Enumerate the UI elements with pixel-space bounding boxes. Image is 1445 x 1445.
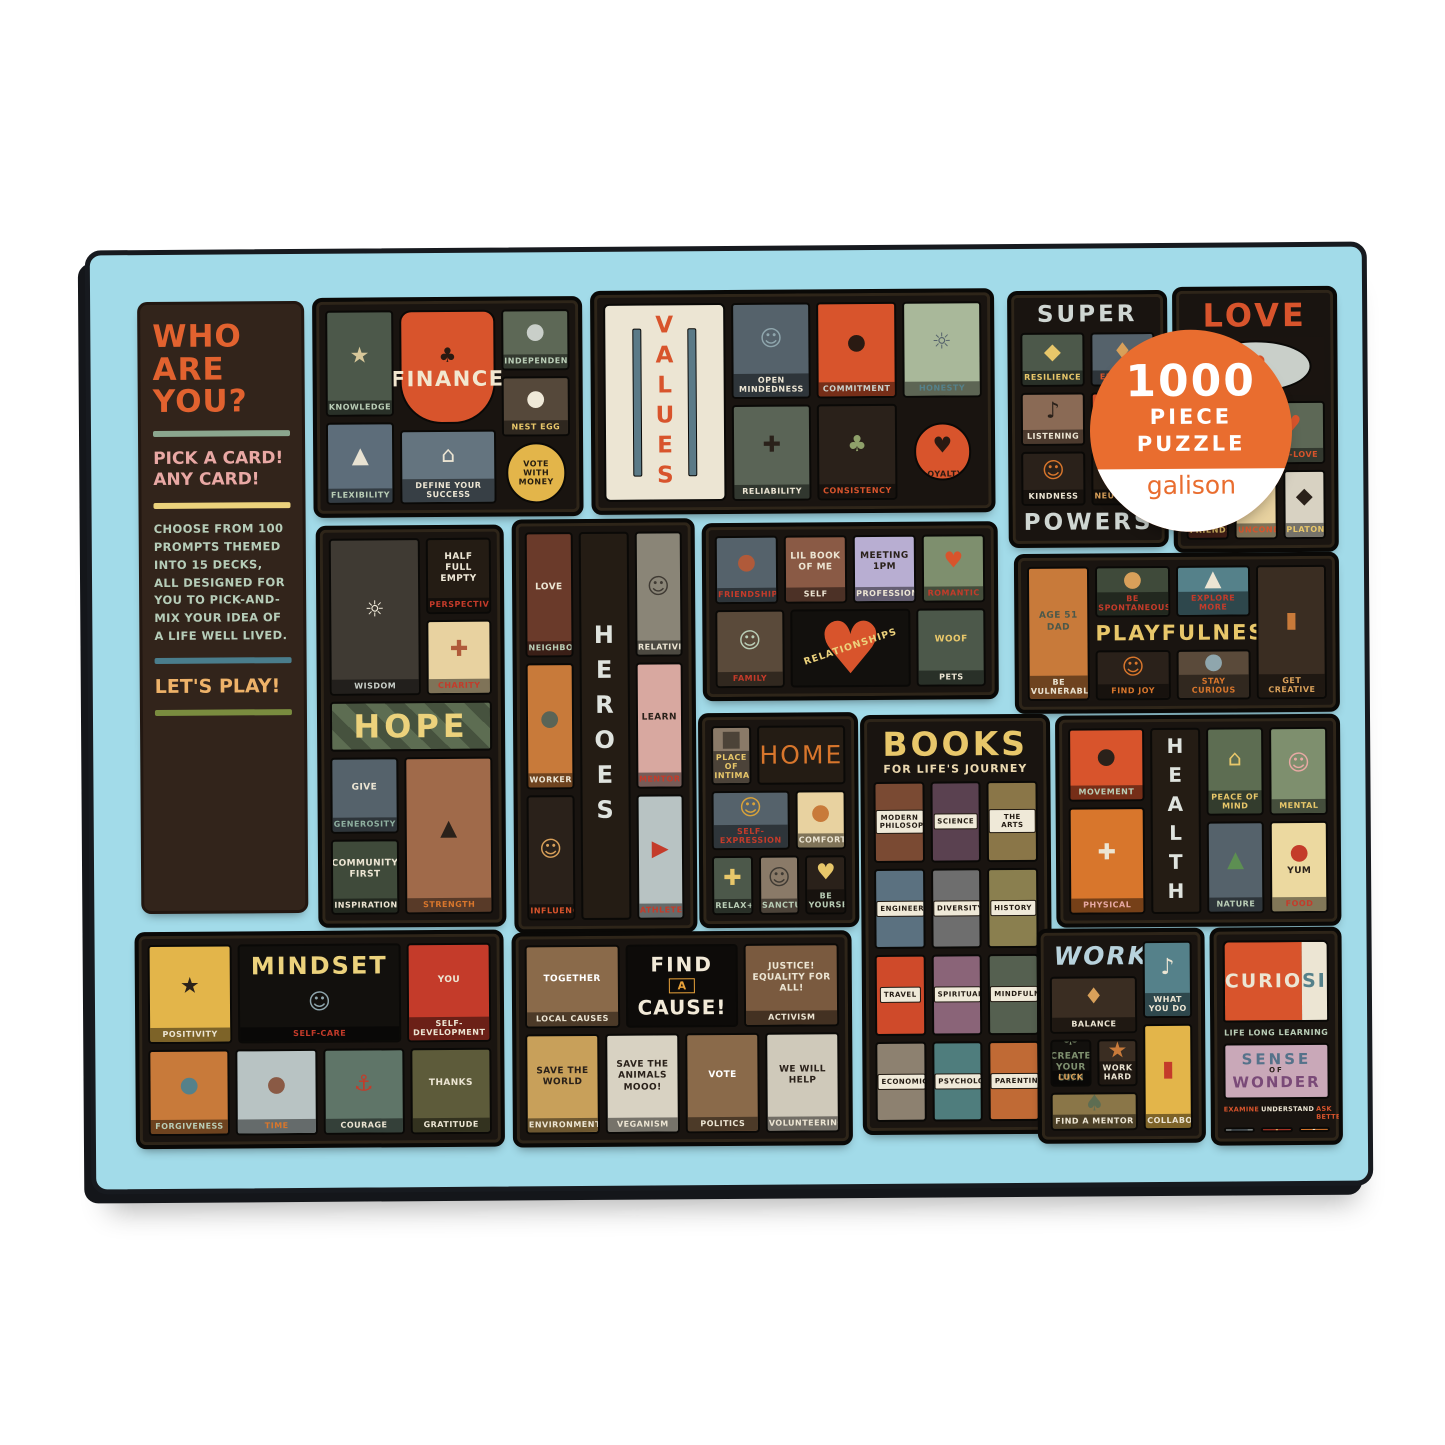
prompt-card: ☺FAMILY	[715, 610, 784, 689]
prompt-label: MINDFULNESS	[990, 986, 1038, 1002]
prompt-card: ●FRIENDSHIP	[715, 536, 778, 604]
prompt-label: NEIGHBOR	[527, 641, 571, 655]
prompt-card: SPIRITUALITY	[931, 954, 982, 1035]
toy-robot-icon: ☺	[1098, 651, 1169, 684]
clock-face-icon: ●	[267, 1074, 286, 1096]
home-panel: ■PLACE OF INTIMACY HOME ☺SELF-EXPRESSION…	[698, 712, 859, 928]
prompt-label: TRAVEL	[880, 987, 921, 1003]
magnifying-glass-icon: ●	[1226, 1129, 1253, 1132]
product-title: WHO ARE YOU?	[152, 320, 290, 419]
prompt-card: COMMUNITY FIRSTINSPIRATION	[331, 839, 399, 915]
books-title: BOOKS	[882, 727, 1028, 761]
pencil-hug-icon: ▮	[1162, 1059, 1174, 1081]
relationships-heart-card: ♥ RELATIONSHIPS	[790, 609, 911, 688]
rocket-icon: ▲	[1204, 568, 1221, 590]
prompt-label: HISTORY	[990, 900, 1036, 916]
anatomy-torso-icon: ✚	[1098, 843, 1117, 865]
dove-flower-icon: ●	[150, 1051, 228, 1120]
prompt-label: PLACE OF INTIMACY	[713, 751, 749, 783]
phone-portrait-icon: ☺	[539, 839, 562, 861]
mug-icon: ●	[811, 802, 830, 824]
card-art-text: WOOF	[935, 635, 968, 646]
work-title: WORK	[1050, 941, 1138, 971]
community-hero-icon: COMMUNITY FIRST	[333, 841, 397, 899]
relationships-panel: ●FRIENDSHIPLIL BOOK OF MESELFMEETING 1PM…	[702, 521, 999, 701]
money-tree-icon: ♣	[438, 345, 456, 365]
prompt-label: PSYCHOLOGY	[934, 1073, 982, 1089]
shield-icon: ◆	[1044, 342, 1061, 364]
hugging-family-icon: ☺	[647, 576, 670, 598]
raised-fist-icon: ●	[847, 332, 866, 354]
prompt-card: YOUSELF-DEVELOPMENT	[407, 943, 492, 1043]
ear-icon: ♪	[1023, 394, 1083, 430]
home-title: HOME	[757, 725, 845, 785]
apple-icon: ●	[1289, 842, 1308, 864]
mindset-title: MINDSET	[239, 945, 399, 980]
prompt-card: ☺RELATIVE	[634, 531, 682, 657]
books-subtitle: FOR LIFE'S JOURNEY	[883, 762, 1027, 776]
finance-panel: ★KNOWLEDGE▲FLEXIBILITY ♣ FINANCE ⌂DEFINE…	[312, 296, 584, 518]
prompt-card: ☺KINDNESS	[1021, 452, 1085, 506]
pocket-knife-icon: ✚	[734, 406, 810, 485]
badge-brand-band: galison	[1090, 468, 1292, 532]
prompt-label: FIND JOY	[1098, 684, 1169, 698]
card-art-text: COMMUNITY FIRST	[332, 858, 399, 881]
prompt-card: ☺FIND JOY	[1096, 649, 1171, 700]
prompt-label: VEGANISM	[608, 1117, 678, 1131]
prompt-card: ☺INFLUENCER	[527, 795, 575, 921]
prompt-card: ●BE SPONTANEOUS	[1095, 566, 1170, 617]
prompt-label: SANCTUARY	[761, 899, 798, 913]
prompt-card: ♥BE YOURSELF	[805, 855, 846, 914]
love-title: LOVE	[1185, 299, 1324, 332]
thumbs-up-coin-icon: ●	[526, 322, 545, 344]
prompt-label: COMFORT	[798, 833, 844, 847]
card-art-text: SAVE THE ANIMALS MOOO!	[609, 1060, 675, 1094]
treasure-map-icon: ★	[350, 345, 370, 367]
prompt-card: ●MOVEMENT	[1068, 728, 1144, 801]
weightlifter-icon: ▲	[440, 817, 457, 839]
prompt-label: GENEROSITY	[333, 817, 397, 831]
nest-eggs-icon: ●	[503, 378, 568, 421]
divider	[155, 657, 292, 664]
prompt-card: MINDFULNESS	[988, 954, 1039, 1035]
runner-icon: ▶	[652, 839, 669, 861]
prompt-label: NATURE	[1209, 897, 1263, 911]
prompt-card: ★POSITIVITY	[148, 944, 233, 1044]
card-art-text: SAVE THE WORLD	[529, 1066, 595, 1089]
prompt-card: SAVE THE ANIMALS MOOO!VEGANISM	[605, 1034, 680, 1134]
card-art-text: WE WILL HELP	[769, 1064, 835, 1087]
finance-right-cards: ●INDEPENDENCE●NEST EGGVOTE WITH MONEY	[501, 309, 571, 503]
heroes-right-cards: ☺RELATIVELEARNMENTOR▶ATHLETE	[634, 531, 684, 919]
prompt-label: POSITIVITY	[150, 1027, 230, 1042]
you-book-icon: YOU	[409, 945, 489, 1018]
open-palm-icon: ☼	[904, 303, 980, 382]
prompt-card: VOTE WITH MONEY	[506, 442, 567, 503]
work-main-col: WORK ♦BALANCE ♣CREATE YOUR OWNLUCK★WORK …	[1050, 941, 1139, 1131]
clover-icon: ♣	[1061, 1039, 1081, 1049]
dog-badge-icon: ♥	[932, 436, 952, 458]
prompt-label: THE ARTS	[989, 809, 1036, 833]
prompt-label: RELIABILITY	[734, 484, 809, 499]
bathtub-icon: ☺	[240, 979, 400, 1027]
hearth-fire-icon: ♥	[816, 862, 836, 884]
mug-icon: ●	[797, 792, 843, 833]
prompt-card: ENGINEERING	[874, 868, 925, 949]
prompt-label: PARENTING	[991, 1073, 1039, 1089]
crayons-icon: ▮	[1258, 567, 1325, 674]
lightbulb-hand-icon: !	[1272, 1127, 1281, 1132]
health-panel: ●MOVEMENT✚PHYSICAL HEALTH ⌂PEACE OF MIND…	[1055, 714, 1341, 928]
family-portrait-icon: ☺	[717, 612, 782, 673]
mentor-tree-icon: ♠	[1084, 1093, 1104, 1115]
mentor-tree-icon: ♠	[1053, 1094, 1137, 1114]
prompt-label: INFLUENCER	[529, 904, 573, 918]
prompt-label: PROFESSIONAL	[855, 587, 914, 601]
prompt-card: ●FORGIVENESS	[148, 1049, 230, 1136]
prompt-card: ●NEST EGG	[501, 376, 570, 437]
lil-book-of-me-icon: LIL BOOK OF ME	[786, 537, 845, 587]
pine-trees-icon: ▲	[1227, 849, 1244, 871]
binoculars-icon: ●	[1204, 652, 1223, 674]
prompt-card: ●INDEPENDENCE	[501, 309, 570, 370]
compass-smiley-icon: ☼	[365, 599, 385, 621]
toy-robot-icon: ☺	[1121, 657, 1144, 679]
apartment-building-icon: ■	[721, 728, 742, 750]
prompt-label: SPIRITUALITY	[934, 986, 982, 1002]
prompt-card: ☺OPEN MINDEDNESS	[731, 302, 811, 399]
puzzle-box: WHO ARE YOU? PICK A CARD! ANY CARD! CHOO…	[85, 242, 1374, 1195]
prompt-label: ACTIVISM	[746, 1010, 837, 1025]
prompt-card: ◆RESILIENCE	[1020, 333, 1084, 387]
cello-stamp-icon: ♪	[1160, 957, 1174, 979]
hand-pencil-head-icon: ☺	[714, 793, 788, 826]
prompt-card: THANKSGRATITUDE	[410, 1048, 492, 1135]
prompt-label: KNOWLEDGE	[328, 400, 392, 414]
prompt-card: ☼HONESTY	[902, 301, 982, 398]
hugging-family-icon: ☺	[636, 533, 680, 641]
work-side-col: ♪WHAT YOU DO▮COLLABORATE	[1143, 941, 1193, 1130]
hearth-fire-icon: ♥	[807, 857, 844, 889]
card-art-text: TOGETHER	[543, 974, 600, 986]
phone-portrait-icon: ☺	[529, 797, 573, 905]
prompt-label: RESILIENCE	[1023, 370, 1083, 384]
give-piggy-bank-icon: GIVE	[332, 759, 396, 817]
card-art-text: MEETING 1PM	[857, 550, 912, 573]
intro-body-text: CHOOSE FROM 100 PROMPTS THEMED INTO 15 D…	[154, 520, 292, 646]
prompt-card: ●STAY CURIOUS	[1176, 649, 1251, 700]
prompt-label: BE VULNERABLE	[1030, 675, 1088, 698]
wonder-line1: SENSE	[1242, 1052, 1312, 1068]
open-door-head-icon: ☺	[733, 304, 809, 374]
prompt-label: COMMITMENT	[819, 382, 894, 397]
cause-title-line2: A	[669, 978, 696, 993]
heroes-title: HEROES	[578, 532, 631, 920]
anatomy-torso-icon: ✚	[1071, 809, 1143, 899]
juggler-stairs-icon: ♦	[1084, 987, 1104, 1009]
prompt-card: ✚RELAX+RECHARGE	[712, 856, 753, 915]
prompt-card: VOTEPOLITICS	[685, 1033, 760, 1133]
card-art-text: THANKS	[429, 1078, 473, 1090]
nest-eggs-icon: ●	[526, 388, 545, 410]
card-art-text: LOVE	[535, 582, 563, 593]
prompt-card: !WHY	[1261, 1127, 1292, 1132]
prompt-card: SCIENCE	[930, 781, 981, 862]
piece-count-badge: 1000 PIECE PUZZLE galison	[1089, 329, 1292, 532]
apartment-building-icon: ■	[713, 728, 749, 751]
question-mark-icon: ?	[1301, 1129, 1328, 1132]
book-shelf: MODERN PHILOSOPHYSCIENCETHE ARTSENGINEER…	[873, 781, 1039, 1122]
tree-icon: ♣	[847, 434, 867, 456]
life-long-learning-label: LIFE LONG LEARNING	[1223, 1028, 1329, 1038]
clover-icon: ♣CREATE YOUR OWN	[1052, 1041, 1089, 1071]
prompt-card: ●WORKER	[526, 663, 574, 789]
dancing-friends-icon: ●	[717, 538, 776, 588]
juggler-stairs-icon: ♦	[1052, 978, 1136, 1017]
books-header: BOOKS FOR LIFE'S JOURNEY	[873, 727, 1037, 776]
prompt-label: CONSISTENCY	[820, 484, 895, 499]
together-banner-icon: TOGETHER	[527, 947, 618, 1013]
apple-icon: ●YUM	[1272, 823, 1326, 897]
prompt-card: ☺SELF-EXPRESSION	[712, 791, 790, 851]
health-title: HEALTH	[1150, 728, 1201, 914]
prompt-label: SELF-EXPRESSION	[714, 825, 788, 849]
prompt-card: MODERN PHILOSOPHY	[873, 782, 924, 863]
thanks-card-icon: THANKS	[412, 1050, 490, 1119]
save-animals-sign-icon: SAVE THE ANIMALS MOOO!	[607, 1036, 678, 1118]
prompt-card: ⌂DEFINE YOUR SUCCESS	[400, 430, 496, 504]
cyclist-icon: ●	[1096, 747, 1115, 769]
prompt-card: ▲EXPLORE MORE	[1176, 565, 1251, 616]
find-a-cause-title-card: FIND A CAUSE!	[625, 944, 738, 1028]
card-art-text: GIVE	[352, 783, 378, 794]
prompt-card: ⚓COURAGE	[323, 1048, 405, 1135]
shield-icon: ◆	[1022, 335, 1082, 371]
prompt-label: MODERN PHILOSOPHY	[876, 810, 924, 834]
dove-flower-icon: ●	[179, 1075, 198, 1097]
prompt-card: ●COMMITMENT	[816, 302, 896, 399]
relationships-row1-cards: ●FRIENDSHIPLIL BOOK OF MESELFMEETING 1PM…	[715, 534, 985, 604]
intro-pick-text: PICK A CARD! ANY CARD!	[153, 448, 290, 491]
prompt-label: MENTOR	[638, 772, 682, 786]
work-panel: WORK ♦BALANCE ♣CREATE YOUR OWNLUCK★WORK …	[1036, 928, 1205, 1144]
prompt-label: ATHLETE	[639, 903, 683, 917]
mountain-climber-icon: ▲	[352, 445, 369, 467]
examine-label: EXAMINE	[1224, 1105, 1259, 1121]
clock-face-icon: ●	[238, 1051, 316, 1120]
intro-panel: WHO ARE YOU? PICK A CARD! ANY CARD! CHOO…	[137, 301, 308, 914]
pocket-knife-icon: ✚	[762, 435, 781, 457]
prompt-card: ●EVERYTHING	[1224, 1127, 1255, 1132]
prompt-label: BALANCE	[1052, 1017, 1136, 1032]
prompt-card: ●TIME	[236, 1049, 318, 1136]
prompt-label: LISTENING	[1023, 430, 1083, 444]
prompt-card: ✚RELIABILITY	[732, 404, 812, 501]
prompt-card: HISTORY	[987, 867, 1038, 948]
prompt-label: LUCK	[1052, 1071, 1089, 1085]
prompt-label: DEFINE YOUR SUCCESS	[403, 479, 495, 503]
house-icon: ⌂	[441, 445, 455, 467]
mindset-panel: ★POSITIVITY MINDSET ☺ SELF-CARE YOUSELF-…	[134, 930, 505, 1150]
puzzle-box-product-photo: { "product": { "badge": {"line1": "1000"…	[0, 0, 1445, 1445]
prompt-label: EXPLORE MORE	[1178, 591, 1249, 614]
badge-word-piece: PIECE	[1150, 403, 1233, 431]
find-a-cause-panel: TOGETHERLOCAL CAUSES FIND A CAUSE! JUSTI…	[511, 930, 852, 1147]
prompt-card: WOOFPETS	[917, 608, 986, 687]
card-art-text: YUM	[1287, 866, 1311, 877]
values-title-card: VALUES	[603, 303, 726, 502]
prompt-label: RELATIVE	[637, 641, 681, 655]
meeting-note-icon: MEETING 1PM	[855, 537, 914, 587]
relationships-row2-cards: ☺FAMILY ♥ RELATIONSHIPS WOOFPETS	[715, 608, 986, 688]
prompt-card: ▮GET CREATIVE	[1256, 565, 1327, 699]
vote-fingers-icon: VOTE	[687, 1035, 758, 1117]
prompt-card: ●COMFORT	[795, 790, 846, 849]
lightbulb-hand-icon: !	[1263, 1129, 1290, 1132]
prompt-label: TIME	[238, 1119, 315, 1134]
compass-smiley-icon: ☼	[331, 540, 419, 680]
prompt-label: CHARITY	[429, 679, 490, 693]
reaching-hands-icon: ✚	[450, 639, 469, 661]
batteries-icon: ✚	[714, 858, 751, 899]
prompt-label: BE YOURSELF	[808, 889, 845, 912]
prompt-card: PSYCHOLOGY	[932, 1041, 983, 1122]
prompt-label: WORKER	[528, 773, 572, 787]
prompt-label: VOLUNTEERING	[768, 1116, 838, 1130]
resting-person-icon: ☺	[761, 858, 798, 899]
prompt-card: TRAVEL	[875, 955, 926, 1036]
question-mark-icon: ?	[1308, 1127, 1320, 1132]
superpowers-title-top: SUPER	[1020, 303, 1154, 327]
prompt-label: COLLABORATE	[1146, 1114, 1191, 1128]
curiosity-title-left: CURIO	[1225, 942, 1303, 1021]
justice-sign-icon: JUSTICE! EQUALITY FOR ALL!	[746, 945, 837, 1011]
raised-fist-icon: ●	[818, 304, 894, 383]
prompt-label: KINDNESS	[1023, 490, 1083, 504]
books-panel: BOOKS FOR LIFE'S JOURNEY MODERN PHILOSOP…	[860, 714, 1053, 1135]
prompt-label: COURAGE	[325, 1118, 402, 1133]
values-title: VALUES	[651, 312, 678, 492]
card-art-text: VOTE	[708, 1070, 736, 1081]
prompt-card: DIVERSITY	[931, 868, 982, 949]
badge-word-puzzle: PUZZLE	[1137, 431, 1246, 459]
burning-earth-sign-icon: SAVE THE WORLD	[527, 1036, 598, 1118]
prompt-card: LOVENEIGHBOR	[525, 532, 573, 658]
prompt-label: PHYSICAL	[1071, 898, 1143, 913]
prompt-card: ▲NATURE	[1207, 821, 1265, 914]
resting-person-icon: ☺	[768, 867, 791, 889]
hug-icon: ☺	[1042, 461, 1065, 483]
open-book-icon: CURIO SITY	[1223, 940, 1330, 1023]
reaching-hands-icon: ✚	[428, 621, 489, 679]
half-full-can-icon: HALF FULL EMPTY	[428, 540, 489, 598]
card-art-text: LIL BOOK OF ME	[788, 551, 843, 574]
roller-skate-icon: ●	[1123, 569, 1142, 591]
curiosity-cards: ●EVERYTHING!WHY?QUESTIONS	[1224, 1127, 1330, 1133]
prompt-card: ♪WHAT YOU DO	[1143, 941, 1192, 1018]
prompt-card: ⌂PEACE OF MIND	[1206, 727, 1264, 815]
prompt-card: LIL BOOK OF MESELF	[784, 535, 847, 603]
ear-icon: ♪	[1046, 401, 1060, 423]
playfulness-title: PLAYFULNESS	[1095, 622, 1250, 644]
prompt-card: ▲STRENGTH	[404, 757, 493, 915]
cause-title-line3: CAUSE!	[637, 995, 726, 1020]
prompt-card: ?QUESTIONS	[1299, 1127, 1330, 1132]
prompt-label: ECONOMICS	[877, 1073, 925, 1089]
roller-skate-icon: ●	[1097, 568, 1168, 592]
card-art-text: HALF FULL EMPTY	[430, 552, 487, 586]
prompt-label: BE SPONTANEOUS	[1097, 591, 1168, 614]
essential-worker-icon: ●	[540, 708, 559, 730]
hope-title: HOPE	[353, 710, 469, 743]
prompt-label: SELF-CARE	[240, 1026, 399, 1041]
ask-better-label: ASK BETTER	[1316, 1105, 1343, 1121]
hug-icon: ☺	[1023, 454, 1083, 490]
prompt-label: FORGIVENESS	[151, 1120, 228, 1135]
prompt-card: ♪LISTENING	[1021, 392, 1085, 446]
brand-logo: galison	[1147, 471, 1236, 501]
mindset-row2: ●FORGIVENESS●TIME⚓COURAGETHANKSGRATITUDE	[148, 1048, 492, 1136]
prompt-label: MENTAL	[1272, 799, 1326, 813]
curiosity-title-right: SITY	[1302, 942, 1329, 1020]
we-will-help-sign-icon: WE WILL HELP	[767, 1034, 838, 1116]
prompt-label: HONESTY	[904, 381, 979, 396]
prompt-label: MOVEMENT	[1070, 785, 1142, 800]
binoculars-icon: ●	[1178, 651, 1249, 675]
heroes-panel: LOVENEIGHBOR●WORKER☺INFLUENCER HEROES ☺R…	[512, 518, 698, 933]
prompt-label: STRENGTH	[407, 898, 491, 913]
cause-row1: TOGETHERLOCAL CAUSES FIND A CAUSE! JUSTI…	[525, 943, 840, 1028]
prompt-label: OPEN MINDEDNESS	[734, 373, 809, 397]
prompt-label: INSPIRATION	[333, 898, 397, 912]
divider	[153, 502, 290, 509]
dancing-friends-icon: ●	[737, 552, 756, 574]
house-icon: ⌂	[402, 432, 494, 479]
prompt-card: ★WORK HARD	[1097, 1039, 1138, 1087]
prompt-card: ♣CREATE YOUR OWNLUCK	[1050, 1039, 1091, 1087]
home-top-row: ■PLACE OF INTIMACY HOME	[711, 725, 845, 785]
learn-laptop-icon: LEARN	[637, 665, 681, 773]
prompt-card: ▮COLLABORATE	[1144, 1024, 1193, 1130]
pencil-icon	[687, 328, 697, 476]
lighthouse-window-icon: ⌂	[1228, 749, 1242, 771]
card-art-text: JUSTICE! EQUALITY FOR ALL!	[748, 961, 835, 995]
flower-head-icon: ☺	[1287, 753, 1310, 775]
card-art-text: AGE 51 DAD	[1031, 611, 1085, 634]
hope-title-band: HOPE	[330, 701, 492, 752]
runner-icon: ▶	[638, 796, 682, 904]
open-door-head-icon: ☺	[759, 328, 782, 350]
finance-purse-art: ♣ FINANCE	[399, 310, 495, 425]
prompt-card: SAVE THE WORLDENVIRONMENT	[525, 1034, 600, 1134]
prompt-label: PETS	[919, 670, 984, 684]
essential-worker-icon: ●	[528, 665, 572, 773]
prompt-card: ☺SANCTUARY	[759, 856, 800, 915]
prompt-card: WE WILL HELPVOLUNTEERING	[765, 1032, 840, 1132]
understand-label: UNDERSTAND	[1261, 1105, 1314, 1121]
card-art-text: YOU	[438, 975, 460, 986]
sense-of-wonder-card: SENSE OF WONDER	[1223, 1043, 1329, 1100]
values-panel: VALUES ☺OPEN MINDEDNESS✚RELIABILITY●COMM…	[590, 288, 996, 515]
prompt-label: WORK HARD	[1099, 1061, 1136, 1084]
finance-title: FINANCE	[391, 368, 505, 390]
prompt-card: PARENTING	[989, 1040, 1040, 1121]
lighthouse-window-icon: ⌂	[1208, 729, 1262, 790]
batteries-icon: ✚	[723, 867, 742, 889]
prompt-label: FOOD	[1273, 897, 1327, 911]
prompt-label: SELF-DEVELOPMENT	[409, 1017, 489, 1041]
